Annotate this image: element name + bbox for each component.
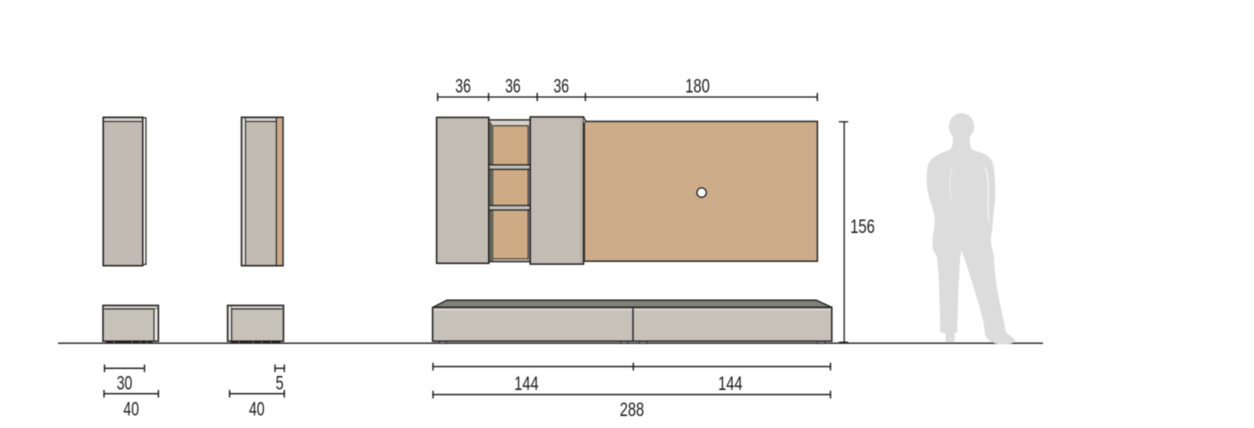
svg-text:36: 36	[554, 75, 570, 97]
svg-text:156: 156	[850, 216, 875, 238]
svg-text:288: 288	[620, 399, 644, 421]
svg-text:36: 36	[455, 75, 471, 97]
svg-text:144: 144	[718, 373, 742, 395]
svg-text:40: 40	[123, 398, 139, 420]
svg-text:180: 180	[685, 75, 710, 97]
svg-text:40: 40	[249, 398, 265, 420]
svg-text:30: 30	[117, 372, 133, 394]
svg-text:5: 5	[276, 372, 284, 394]
svg-text:36: 36	[505, 75, 521, 97]
svg-text:144: 144	[514, 373, 538, 395]
